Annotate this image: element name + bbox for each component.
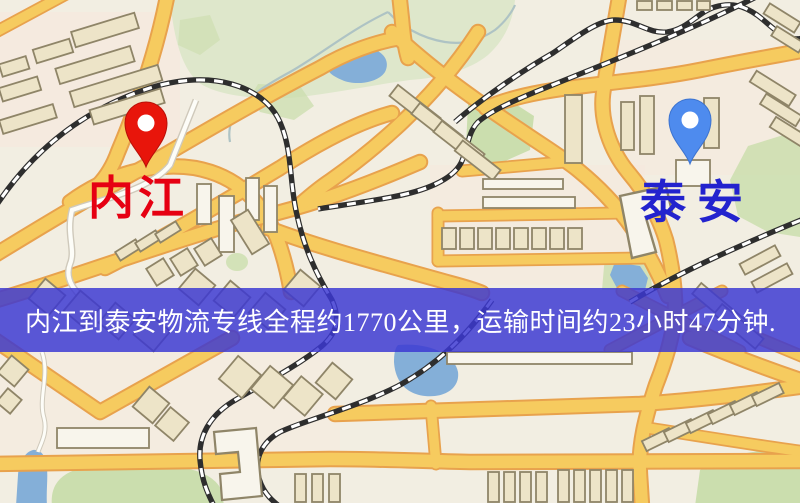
map-view[interactable]: 内江 泰安 内江到泰安物流专线全程约1770公里，运输时间约23小时47分钟. — [0, 0, 800, 503]
route-info-text: 内江到泰安物流专线全程约1770公里，运输时间约23小时47分钟. — [0, 302, 776, 339]
destination-city-label: 泰安 — [640, 180, 754, 226]
map-canvas[interactable] — [0, 0, 800, 503]
route-info-banner: 内江到泰安物流专线全程约1770公里，运输时间约23小时47分钟. — [0, 288, 800, 352]
origin-city-label: 内江 — [88, 176, 188, 222]
